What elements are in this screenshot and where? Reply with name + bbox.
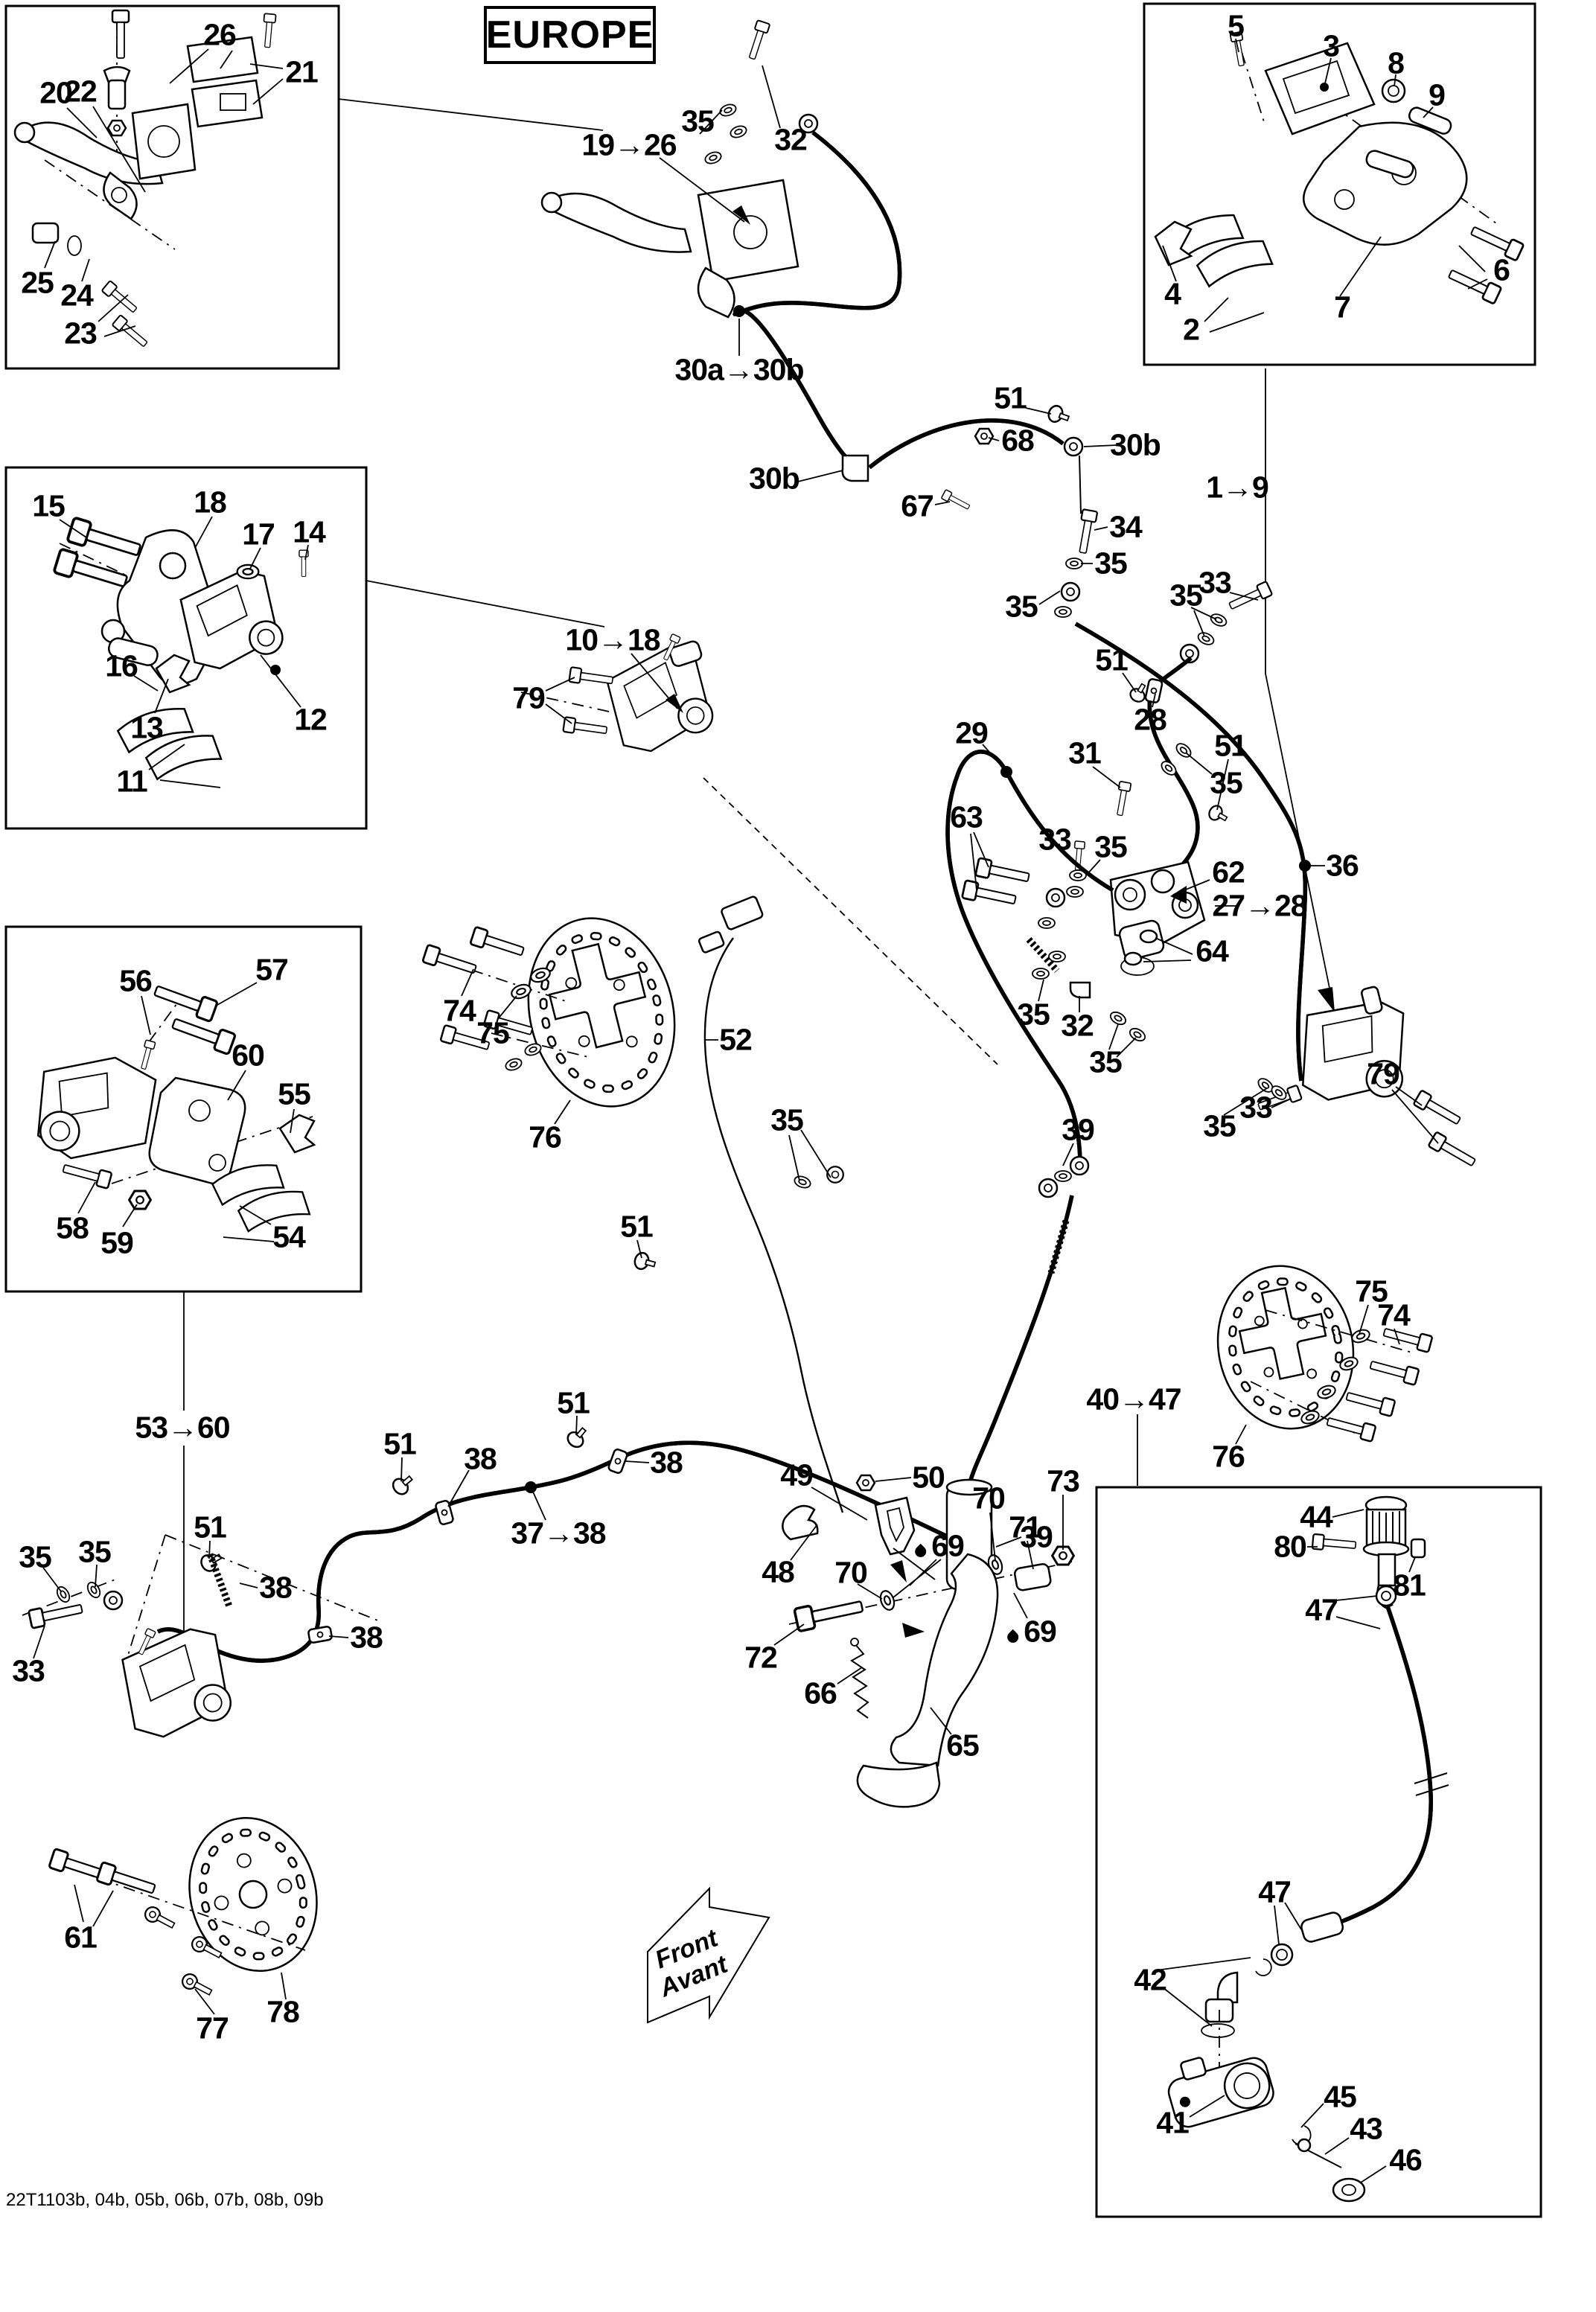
part-label-4: 4 bbox=[1164, 279, 1181, 310]
part-label-22: 22 bbox=[64, 77, 97, 107]
part-label-5: 5 bbox=[1228, 11, 1244, 42]
part-label-51: 51 bbox=[620, 1212, 653, 1242]
part-label-38: 38 bbox=[350, 1623, 383, 1653]
part-label-38: 38 bbox=[650, 1448, 683, 1478]
part-label-35: 35 bbox=[1203, 1111, 1236, 1142]
part-label-35: 35 bbox=[1094, 549, 1127, 579]
part-label-72: 72 bbox=[744, 1643, 777, 1673]
part-label-45: 45 bbox=[1324, 2082, 1356, 2113]
part-label-47: 47 bbox=[1305, 1595, 1338, 1626]
part-label-68: 68 bbox=[1001, 426, 1034, 456]
part-label-16: 16 bbox=[105, 651, 138, 682]
part-label-61: 61 bbox=[64, 1923, 97, 1953]
part-label-55: 55 bbox=[278, 1079, 310, 1110]
part-label-35: 35 bbox=[1017, 1000, 1050, 1030]
part-label-44: 44 bbox=[1300, 1502, 1332, 1533]
part-label-24: 24 bbox=[60, 281, 93, 311]
part-label-63: 63 bbox=[950, 802, 983, 833]
part-label-60: 60 bbox=[232, 1041, 264, 1071]
sheet-code: 22T1103b, 04b, 05b, 06b, 07b, 08b, 09b bbox=[6, 2190, 324, 2212]
part-label-79: 79 bbox=[1367, 1059, 1399, 1090]
part-label-43: 43 bbox=[1350, 2114, 1382, 2145]
part-label-74: 74 bbox=[1377, 1300, 1410, 1331]
part-label-35: 35 bbox=[1089, 1047, 1122, 1078]
part-label-51: 51 bbox=[557, 1388, 590, 1419]
part-label-23: 23 bbox=[64, 319, 97, 349]
part-label-51: 51 bbox=[994, 383, 1027, 414]
part-label-6: 6 bbox=[1493, 255, 1510, 286]
part-label-56: 56 bbox=[119, 966, 152, 997]
part-label-27→28: 27→28 bbox=[1212, 891, 1306, 922]
part-label-46: 46 bbox=[1389, 2145, 1422, 2176]
part-label-30b: 30b bbox=[749, 464, 799, 494]
part-label-70: 70 bbox=[834, 1558, 867, 1588]
part-label-15: 15 bbox=[32, 491, 65, 522]
part-label-41: 41 bbox=[1156, 2108, 1189, 2139]
part-label-73: 73 bbox=[1047, 1466, 1079, 1497]
part-label-8: 8 bbox=[1388, 48, 1404, 79]
part-label-77: 77 bbox=[196, 2014, 229, 2044]
part-label-66: 66 bbox=[804, 1679, 837, 1709]
part-label-75: 75 bbox=[476, 1018, 509, 1049]
part-label-54: 54 bbox=[272, 1222, 305, 1253]
part-label-3: 3 bbox=[1323, 31, 1339, 62]
part-label-69: 69 bbox=[1007, 1617, 1056, 1647]
part-label-29: 29 bbox=[955, 718, 988, 749]
part-label-38: 38 bbox=[259, 1573, 292, 1603]
part-label-17: 17 bbox=[242, 520, 275, 550]
part-label-21: 21 bbox=[285, 57, 318, 88]
part-label-64: 64 bbox=[1196, 936, 1228, 967]
part-label-35: 35 bbox=[1094, 832, 1127, 863]
part-label-2: 2 bbox=[1183, 315, 1199, 345]
part-label-33: 33 bbox=[1198, 568, 1231, 598]
part-label-28: 28 bbox=[1134, 705, 1166, 735]
part-label-36: 36 bbox=[1326, 851, 1359, 881]
part-label-25: 25 bbox=[21, 268, 54, 298]
part-label-51: 51 bbox=[383, 1429, 416, 1460]
part-label-50: 50 bbox=[912, 1463, 945, 1493]
part-labels: 20222621252423538942761→919→26353230a→30… bbox=[0, 0, 1596, 2312]
part-label-57: 57 bbox=[255, 955, 288, 986]
part-label-49: 49 bbox=[780, 1460, 813, 1491]
part-label-76: 76 bbox=[1212, 1442, 1245, 1472]
fluid-drop-icon bbox=[913, 1544, 928, 1559]
part-label-67: 67 bbox=[901, 491, 933, 522]
part-label-35: 35 bbox=[770, 1105, 803, 1136]
part-label-65: 65 bbox=[946, 1731, 979, 1761]
part-label-47: 47 bbox=[1258, 1877, 1291, 1908]
part-label-70: 70 bbox=[972, 1484, 1005, 1514]
part-label-26: 26 bbox=[203, 20, 236, 51]
part-label-38: 38 bbox=[464, 1444, 497, 1475]
part-label-12: 12 bbox=[294, 705, 327, 735]
part-label-35: 35 bbox=[1169, 581, 1202, 611]
part-label-52: 52 bbox=[719, 1025, 752, 1056]
part-label-30b: 30b bbox=[1110, 430, 1161, 461]
part-label-32: 32 bbox=[774, 125, 807, 156]
part-label-79: 79 bbox=[512, 683, 545, 714]
part-label-59: 59 bbox=[100, 1228, 133, 1259]
part-label-62: 62 bbox=[1212, 858, 1245, 888]
part-label-69: 69 bbox=[915, 1531, 964, 1562]
part-label-76: 76 bbox=[529, 1123, 561, 1153]
part-label-33: 33 bbox=[12, 1656, 45, 1687]
part-label-13: 13 bbox=[130, 713, 163, 744]
part-label-7: 7 bbox=[1334, 293, 1350, 323]
part-label-35: 35 bbox=[1005, 592, 1038, 622]
part-label-71: 71 bbox=[1009, 1513, 1041, 1543]
part-label-33: 33 bbox=[1239, 1093, 1272, 1123]
part-label-39: 39 bbox=[1062, 1115, 1094, 1146]
part-label-14: 14 bbox=[293, 517, 325, 548]
part-label-11: 11 bbox=[116, 767, 147, 797]
part-label-30a→30b: 30a→30b bbox=[674, 355, 803, 386]
part-label-18: 18 bbox=[194, 488, 226, 518]
part-label-33: 33 bbox=[1038, 825, 1071, 855]
part-label-80: 80 bbox=[1274, 1532, 1306, 1562]
part-label-35: 35 bbox=[681, 106, 714, 137]
part-label-32: 32 bbox=[1061, 1011, 1094, 1041]
part-label-37→38: 37→38 bbox=[511, 1519, 605, 1549]
part-label-10→18: 10→18 bbox=[565, 625, 660, 656]
part-label-35: 35 bbox=[78, 1537, 111, 1568]
part-label-35: 35 bbox=[19, 1542, 51, 1573]
part-label-48: 48 bbox=[762, 1557, 794, 1588]
part-label-40→47: 40→47 bbox=[1086, 1385, 1181, 1415]
part-label-35: 35 bbox=[1210, 768, 1242, 799]
part-label-74: 74 bbox=[443, 996, 476, 1026]
part-label-78: 78 bbox=[266, 1997, 299, 2028]
part-label-53→60: 53→60 bbox=[135, 1413, 229, 1443]
part-label-34: 34 bbox=[1109, 512, 1142, 543]
part-label-51: 51 bbox=[1095, 645, 1128, 676]
part-label-51: 51 bbox=[1214, 731, 1247, 761]
part-label-42: 42 bbox=[1134, 1965, 1166, 1996]
part-label-51: 51 bbox=[194, 1513, 226, 1543]
part-label-9: 9 bbox=[1429, 80, 1445, 111]
part-label-58: 58 bbox=[56, 1213, 89, 1244]
part-label-1→9: 1→9 bbox=[1206, 473, 1268, 503]
part-label-19→26: 19→26 bbox=[581, 130, 676, 161]
fluid-drop-icon bbox=[1005, 1629, 1021, 1645]
part-label-81: 81 bbox=[1393, 1571, 1426, 1601]
part-label-31: 31 bbox=[1068, 738, 1101, 769]
parts-diagram-page: Front Avant EUROPE 202226212524235389427… bbox=[0, 0, 1596, 2312]
